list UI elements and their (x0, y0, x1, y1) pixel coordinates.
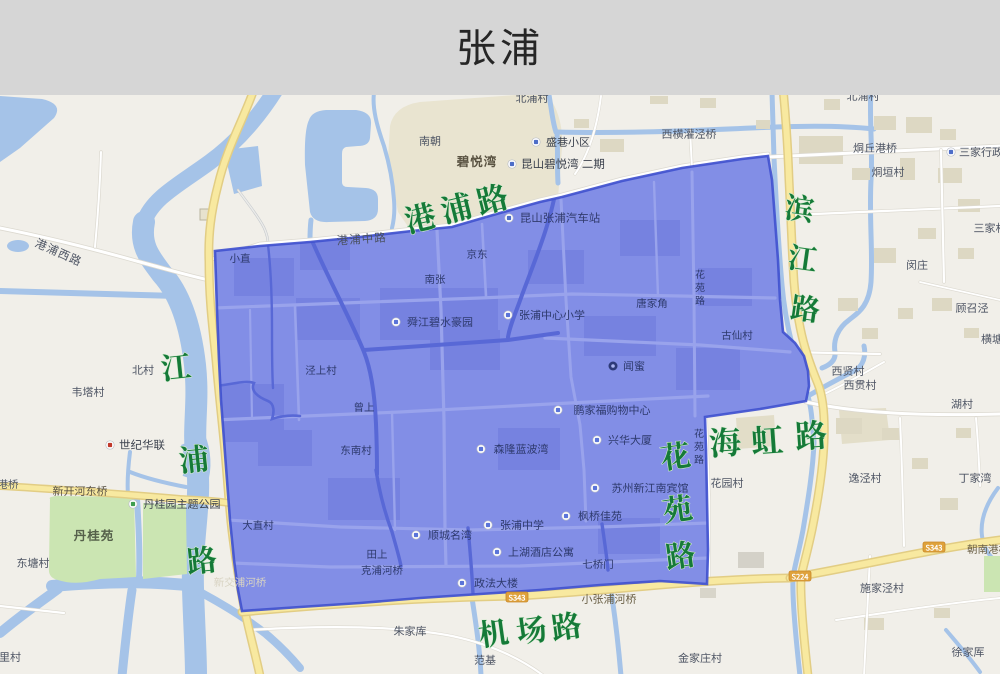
svg-text:S343: S343 (509, 593, 526, 604)
svg-text:大直村: 大直村 (242, 518, 274, 533)
svg-text:花: 花 (657, 430, 693, 478)
svg-text:昆山张浦汽车站: 昆山张浦汽车站 (520, 210, 601, 226)
svg-text:闵庄: 闵庄 (906, 257, 928, 273)
svg-text:横塘: 横塘 (981, 331, 1000, 347)
svg-text:鹏家福购物中心: 鹏家福购物中心 (574, 402, 651, 418)
svg-text:丁家湾: 丁家湾 (959, 470, 992, 486)
svg-text:机: 机 (475, 607, 511, 655)
svg-text:曾上: 曾上 (354, 400, 375, 415)
svg-text:港桥: 港桥 (0, 477, 19, 492)
svg-text:虹: 虹 (750, 415, 785, 463)
svg-text:上湖酒店公寓: 上湖酒店公寓 (508, 544, 574, 560)
svg-text:泾上村: 泾上村 (305, 363, 337, 378)
svg-text:昆山碧悦湾 二期: 昆山碧悦湾 二期 (521, 156, 605, 172)
svg-text:海: 海 (708, 417, 743, 465)
svg-text:小张浦河桥: 小张浦河桥 (582, 591, 637, 607)
svg-text:西贯村: 西贯村 (844, 377, 877, 393)
svg-text:金家庄村: 金家庄村 (678, 650, 722, 666)
svg-text:苑: 苑 (659, 483, 695, 531)
svg-text:S343: S343 (926, 543, 943, 554)
svg-text:花园村: 花园村 (711, 475, 744, 491)
svg-text:古仙村: 古仙村 (721, 328, 753, 343)
svg-text:小直: 小直 (230, 251, 251, 266)
svg-text:场: 场 (513, 604, 549, 652)
svg-text:路: 路 (695, 292, 705, 307)
svg-text:枫桥佳苑: 枫桥佳苑 (578, 508, 622, 524)
svg-text:北浦村: 北浦村 (516, 95, 549, 106)
svg-text:东南村: 东南村 (340, 443, 372, 458)
svg-text:朱家库: 朱家库 (394, 623, 427, 639)
svg-text:北浦村: 北浦村 (847, 95, 880, 104)
svg-text:森隆蓝波湾: 森隆蓝波湾 (494, 441, 549, 457)
svg-text:新交浦河桥: 新交浦河桥 (214, 575, 267, 590)
svg-text:顾召泾: 顾召泾 (956, 300, 989, 316)
svg-text:路: 路 (794, 410, 829, 458)
svg-text:张浦中心小学: 张浦中心小学 (519, 307, 585, 323)
svg-text:施家泾村: 施家泾村 (860, 580, 904, 596)
svg-text:南朝: 南朝 (419, 133, 441, 149)
svg-text:路: 路 (662, 529, 698, 577)
svg-text:路: 路 (184, 535, 218, 582)
svg-text:顺城名湾: 顺城名湾 (428, 527, 472, 543)
svg-text:舜江碧水豪园: 舜江碧水豪园 (407, 314, 473, 330)
svg-text:碧悦湾: 碧悦湾 (456, 151, 498, 170)
svg-text:七桥门: 七桥门 (582, 557, 614, 572)
svg-text:京东: 京东 (467, 247, 488, 262)
svg-text:新开河东桥: 新开河东桥 (53, 483, 108, 499)
svg-text:S224: S224 (792, 572, 810, 583)
svg-text:盛巷小区: 盛巷小区 (546, 134, 590, 150)
svg-text:丹桂园主题公园: 丹桂园主题公园 (144, 496, 221, 512)
svg-text:烔垣村: 烔垣村 (872, 164, 905, 180)
svg-text:江: 江 (785, 235, 819, 280)
svg-text:路: 路 (694, 451, 704, 466)
svg-text:田上: 田上 (367, 547, 388, 562)
svg-text:路: 路 (548, 600, 584, 648)
svg-text:江: 江 (158, 342, 192, 389)
svg-text:东塘村: 东塘村 (17, 555, 50, 571)
svg-text:徐家厍: 徐家厍 (952, 644, 985, 660)
svg-text:三家行政: 三家行政 (959, 144, 1000, 160)
svg-text:闻蜜: 闻蜜 (623, 358, 645, 374)
svg-text:朝南港桥: 朝南港桥 (967, 542, 1000, 557)
svg-text:张浦中学: 张浦中学 (500, 517, 544, 533)
svg-text:丹桂苑: 丹桂苑 (74, 525, 115, 544)
svg-text:湖村: 湖村 (951, 396, 973, 412)
svg-text:克浦河桥: 克浦河桥 (361, 563, 403, 578)
svg-text:逸泾村: 逸泾村 (849, 470, 882, 486)
svg-text:韦塔村: 韦塔村 (72, 384, 105, 400)
svg-text:路: 路 (788, 285, 822, 330)
svg-text:北村: 北村 (132, 362, 154, 378)
svg-text:世纪华联: 世纪华联 (119, 437, 165, 453)
svg-text:烔丘港桥: 烔丘港桥 (853, 140, 897, 156)
svg-text:三家村: 三家村 (974, 220, 1000, 236)
svg-text:浦: 浦 (176, 434, 210, 481)
svg-text:南张: 南张 (425, 272, 446, 287)
svg-text:西横灌泾桥: 西横灌泾桥 (662, 126, 717, 142)
svg-text:唐家角: 唐家角 (636, 296, 668, 311)
svg-text:政法大楼: 政法大楼 (474, 575, 518, 591)
svg-text:兴华大厦: 兴华大厦 (608, 432, 652, 448)
svg-text:里村: 里村 (0, 649, 21, 665)
